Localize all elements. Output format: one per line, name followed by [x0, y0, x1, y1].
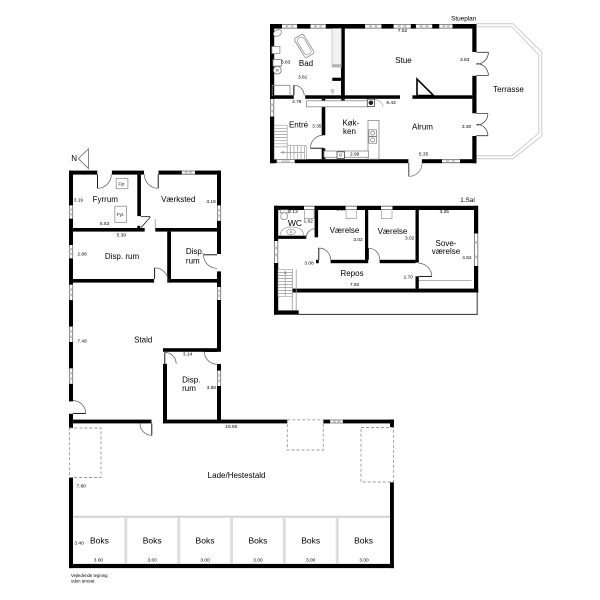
svg-text:7.80: 7.80: [77, 483, 87, 489]
svg-text:3.00: 3.00: [253, 557, 263, 563]
svg-text:3.83: 3.83: [460, 57, 470, 63]
svg-text:1.62: 1.62: [304, 219, 314, 225]
svg-text:3.83: 3.83: [281, 60, 291, 66]
svg-text:Værelse: Værelse: [330, 226, 360, 235]
svg-text:Terrasse: Terrasse: [493, 85, 524, 94]
svg-text:1.Sal: 1.Sal: [460, 197, 475, 204]
svg-text:Disp. rum: Disp. rum: [105, 252, 140, 261]
svg-text:3.30: 3.30: [462, 124, 472, 130]
svg-text:3.02: 3.02: [353, 237, 363, 243]
svg-text:3.35: 3.35: [312, 124, 322, 130]
svg-text:Værelse: Værelse: [378, 227, 408, 236]
svg-text:Stue: Stue: [395, 56, 412, 65]
svg-text:3.25: 3.25: [440, 209, 450, 215]
svg-text:3.00: 3.00: [306, 557, 316, 563]
svg-text:Fyr.: Fyr.: [118, 181, 125, 186]
svg-text:Fyr.: Fyr.: [117, 212, 124, 217]
svg-text:5.39: 5.39: [117, 233, 127, 239]
svg-text:2.99: 2.99: [350, 151, 360, 157]
svg-text:Stald: Stald: [134, 336, 152, 345]
svg-text:5.53: 5.53: [100, 221, 110, 227]
svg-text:Fyrrum: Fyrrum: [93, 195, 119, 204]
svg-text:Stueplan: Stueplan: [451, 16, 477, 23]
svg-text:3.00: 3.00: [148, 557, 158, 563]
svg-text:rum: rum: [186, 257, 200, 266]
svg-text:ken: ken: [343, 127, 356, 136]
svg-text:3.19: 3.19: [74, 198, 84, 204]
svg-text:2.79: 2.79: [292, 99, 302, 105]
svg-text:WC: WC: [288, 218, 302, 228]
svg-text:Boks: Boks: [90, 535, 109, 545]
svg-text:3.00: 3.00: [359, 557, 369, 563]
svg-text:3.02: 3.02: [405, 235, 415, 241]
svg-text:3.00: 3.00: [94, 557, 104, 563]
svg-text:Boks: Boks: [354, 535, 373, 545]
svg-text:5.35: 5.35: [419, 152, 429, 158]
svg-text:Værksted: Værksted: [161, 195, 195, 204]
svg-text:7.92: 7.92: [350, 282, 360, 288]
svg-text:uden ansvar.: uden ansvar.: [71, 579, 96, 584]
svg-text:7.52: 7.52: [398, 28, 408, 34]
svg-text:2.88: 2.88: [77, 252, 87, 258]
svg-text:Boks: Boks: [143, 535, 162, 545]
svg-text:rum: rum: [182, 384, 196, 393]
svg-text:3.08: 3.08: [304, 261, 314, 267]
svg-text:2.13: 2.13: [288, 209, 298, 215]
svg-text:4.52: 4.52: [462, 255, 472, 261]
svg-text:værelse: værelse: [432, 247, 461, 256]
svg-text:Vejledende tegning: Vejledende tegning: [71, 573, 108, 578]
svg-text:3.14: 3.14: [183, 352, 193, 358]
svg-text:Alrum: Alrum: [412, 123, 433, 132]
svg-text:7.48: 7.48: [77, 339, 87, 345]
svg-text:3.81: 3.81: [298, 75, 308, 81]
svg-text:Repos: Repos: [340, 269, 363, 278]
svg-text:3.40: 3.40: [74, 540, 84, 546]
svg-text:Bad: Bad: [299, 59, 313, 68]
svg-text:Entré: Entré: [289, 121, 309, 130]
svg-text:2.80: 2.80: [336, 207, 346, 213]
svg-text:Boks: Boks: [301, 535, 320, 545]
svg-text:Boks: Boks: [196, 535, 215, 545]
svg-text:N: N: [71, 154, 77, 163]
svg-text:18.50: 18.50: [225, 424, 237, 430]
svg-text:Disp.: Disp.: [186, 247, 204, 256]
svg-text:3.00: 3.00: [200, 557, 210, 563]
svg-text:3.88: 3.88: [207, 385, 217, 391]
svg-text:Boks: Boks: [248, 535, 267, 545]
svg-text:Lade/Hestestald: Lade/Hestestald: [208, 471, 266, 480]
svg-text:1.70: 1.70: [404, 274, 414, 280]
svg-text:3.19: 3.19: [206, 199, 216, 205]
svg-text:8.43: 8.43: [386, 100, 396, 106]
